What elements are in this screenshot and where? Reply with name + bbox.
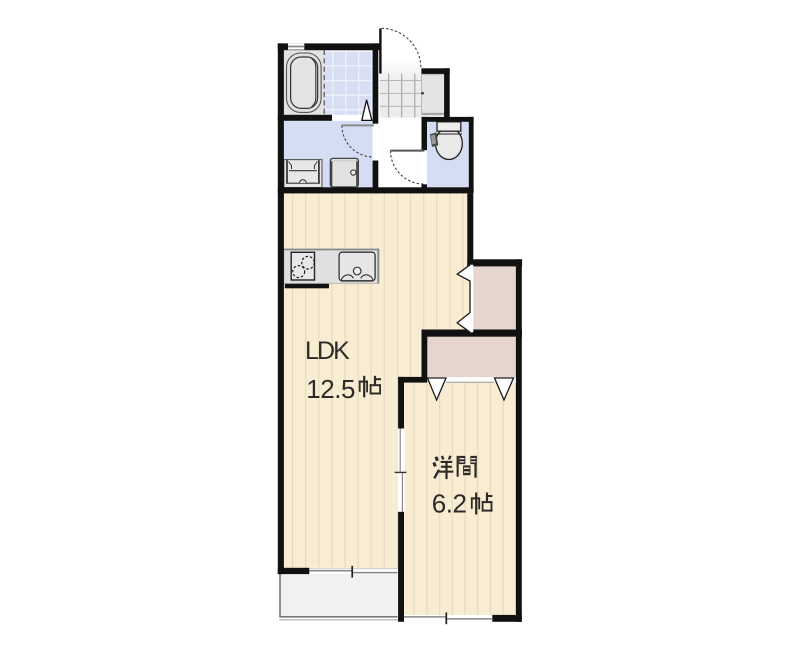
svg-text:LDK: LDK bbox=[305, 337, 350, 365]
svg-text:6.2: 6.2 bbox=[432, 488, 467, 518]
svg-text:12.5: 12.5 bbox=[306, 374, 355, 404]
